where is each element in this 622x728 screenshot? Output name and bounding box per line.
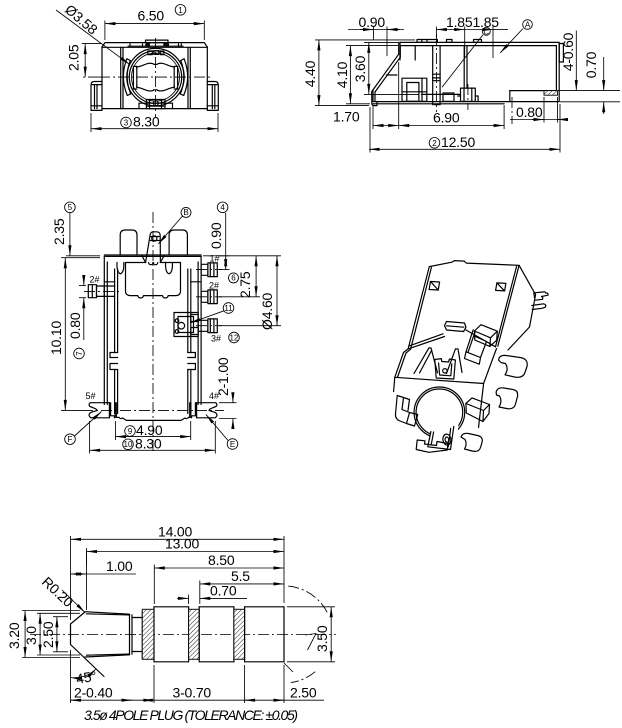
svg-text:4-0.60: 4-0.60 — [560, 32, 576, 71]
svg-text:5.5: 5.5 — [231, 568, 250, 584]
svg-text:12.50: 12.50 — [441, 134, 475, 150]
svg-text:1.851.85: 1.851.85 — [446, 14, 499, 30]
svg-text:0.90: 0.90 — [359, 14, 386, 30]
svg-text:F: F — [68, 435, 73, 444]
svg-text:3#: 3# — [211, 334, 221, 344]
svg-text:9: 9 — [128, 427, 133, 436]
svg-text:2.05: 2.05 — [66, 44, 82, 71]
svg-text:12: 12 — [230, 333, 239, 342]
svg-text:8.50: 8.50 — [208, 552, 235, 568]
svg-text:E: E — [230, 440, 235, 449]
svg-text:10.10: 10.10 — [48, 321, 64, 355]
svg-text:3: 3 — [124, 119, 129, 128]
svg-text:1: 1 — [178, 6, 183, 15]
svg-text:3.50: 3.50 — [314, 625, 330, 652]
svg-text:2.50: 2.50 — [40, 621, 56, 648]
svg-text:A: A — [525, 21, 531, 30]
svg-text:4.10: 4.10 — [334, 61, 350, 88]
svg-text:13.00: 13.00 — [165, 536, 199, 552]
svg-text:0.70: 0.70 — [210, 583, 237, 599]
svg-text:C: C — [483, 27, 489, 36]
svg-text:4: 4 — [220, 203, 225, 212]
svg-text:10: 10 — [124, 440, 133, 449]
svg-text:Ø4.60: Ø4.60 — [259, 292, 275, 330]
svg-text:0.80: 0.80 — [67, 312, 83, 339]
svg-text:7: 7 — [75, 351, 84, 356]
svg-text:8.30: 8.30 — [135, 435, 162, 451]
svg-text:3.0: 3.0 — [23, 626, 39, 645]
svg-text:8.30: 8.30 — [133, 114, 160, 130]
svg-text:3.60: 3.60 — [352, 55, 368, 82]
svg-text:11: 11 — [224, 304, 233, 313]
svg-text:1.00: 1.00 — [106, 558, 133, 574]
svg-text:4.40: 4.40 — [302, 60, 318, 87]
svg-text:5#: 5# — [86, 391, 96, 401]
svg-text:2#: 2# — [90, 275, 100, 285]
svg-text:2.50: 2.50 — [290, 685, 317, 701]
svg-text:6.90: 6.90 — [433, 110, 460, 126]
svg-text:0.70: 0.70 — [583, 51, 599, 78]
svg-text:6: 6 — [231, 274, 236, 283]
svg-text:0.80: 0.80 — [516, 104, 543, 120]
svg-text:2#: 2# — [209, 281, 219, 291]
svg-text:5: 5 — [68, 203, 73, 212]
svg-text:2-0.40: 2-0.40 — [74, 685, 113, 701]
svg-text:1.70: 1.70 — [333, 109, 360, 125]
svg-text:3.20: 3.20 — [6, 622, 22, 649]
svg-text:1#: 1# — [210, 254, 220, 264]
svg-text:0.90: 0.90 — [208, 222, 224, 249]
svg-text:2-1.00: 2-1.00 — [215, 357, 231, 396]
svg-text:B: B — [183, 208, 188, 217]
svg-text:3.5ø 4POLE PLUG (TOLERANCE: ±0: 3.5ø 4POLE PLUG (TOLERANCE: ±0.05) — [84, 707, 298, 723]
svg-text:3-0.70: 3-0.70 — [173, 685, 212, 701]
svg-text:2.35: 2.35 — [51, 218, 67, 245]
svg-text:2.75: 2.75 — [237, 271, 253, 298]
svg-text:2: 2 — [432, 139, 437, 148]
svg-text:6.50: 6.50 — [138, 7, 165, 23]
